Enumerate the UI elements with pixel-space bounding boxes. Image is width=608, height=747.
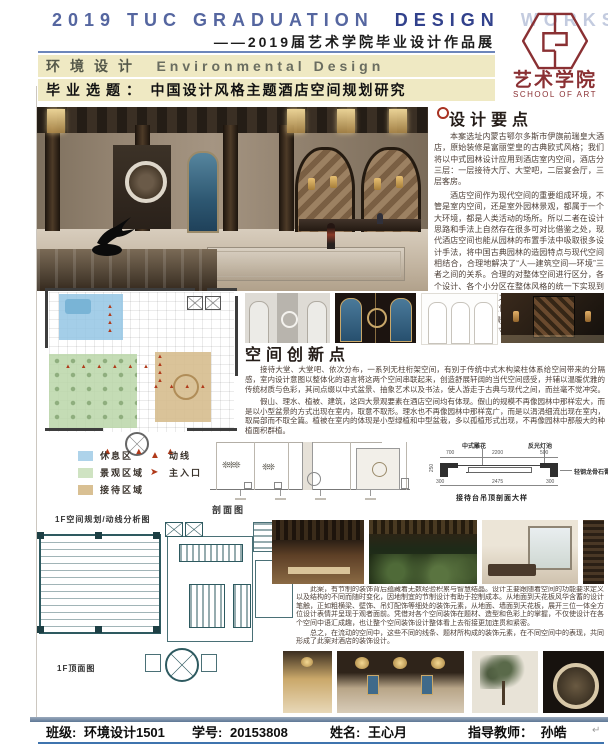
footer-bottom-line [38, 742, 604, 744]
medallion-circle [367, 308, 387, 328]
dimension: 300 [546, 479, 554, 485]
section-top-line [216, 442, 382, 443]
dimension: 2475 [492, 479, 503, 485]
gypsum-end-block [440, 463, 458, 477]
chandelier-icon [355, 657, 369, 669]
sofa [488, 564, 536, 576]
annotation-tick [280, 490, 281, 496]
dimension-height: 250 [429, 464, 435, 472]
chandelier-icon [393, 657, 407, 669]
blue-screen-panel [367, 675, 379, 695]
chandelier-icon [431, 657, 445, 669]
gypsum-end-block [540, 463, 558, 477]
column-marker [37, 532, 44, 539]
class-label: 班级: [46, 725, 76, 740]
section-caption: 剖面图 [212, 503, 245, 516]
annotation-label-mark [275, 498, 286, 500]
column-marker [95, 532, 102, 539]
dimension: 500 [540, 450, 548, 456]
chandelier-icon [337, 109, 355, 133]
name-label: 姓名: [330, 725, 360, 740]
arch-outline [249, 301, 269, 343]
tree-foliage [480, 655, 530, 689]
annotation-tick [240, 490, 241, 496]
advisor-label: 指导教师： [468, 725, 533, 740]
footer-class: 班级: 环境设计1501 [46, 722, 165, 741]
column-marker [37, 626, 44, 633]
door-flank [145, 654, 161, 672]
decor-para2: 总之，在流动的空间中，这些不同的线条、题材所构成的装饰元素，在不同空间中的表现，… [296, 630, 604, 647]
student-id-value: 20153808 [230, 725, 288, 740]
slat-ceiling-area [39, 534, 161, 634]
hexagon-logo-icon [506, 12, 604, 70]
dimension: 300 [436, 479, 444, 485]
detail-caption: 接待台吊顶剖面大样 [456, 493, 528, 503]
ceiling-detail-drawing: 中式雕花 反光灯池 700 2200 500 轻钢龙骨石膏板 300 2475 … [436, 441, 604, 503]
chandelier-icon [287, 109, 305, 133]
arrow-marker-icon: ➤ [150, 467, 163, 478]
class-value: 环境设计1501 [84, 725, 165, 740]
lobby-corner-photo [283, 651, 332, 713]
title-part2: DESIGN [395, 10, 500, 30]
plan-wall [235, 296, 238, 376]
footer-student-id: 学号: 20153808 [192, 722, 288, 741]
dimension: 2200 [492, 450, 503, 456]
logo-name-cn: 艺术学院 [506, 70, 604, 90]
advisor-value: 孙皓 [541, 725, 567, 740]
topic-bar: 毕业选题： 中国设计风格主题酒店空间规划研究 [38, 79, 495, 101]
section-lamp-circle [307, 472, 321, 486]
arch-outline [428, 302, 447, 344]
arch-outline [451, 302, 470, 344]
logo-name-en: SCHOOL OF ART [506, 90, 604, 100]
title-chinese: ——2019届艺术学院毕业设计作品展 [38, 32, 495, 52]
lotus-pond-foliage [369, 554, 477, 584]
floor-reflection [501, 335, 604, 343]
legend-label: 休息区 [100, 449, 133, 462]
hero-reception-desk [299, 219, 421, 231]
wall-lamp-icon [585, 311, 591, 322]
rest-zone-swatch [78, 451, 93, 461]
plant-sketch: ❊❊ [262, 462, 273, 473]
moon-gate-photo [543, 651, 604, 713]
legend-label: 动线 [169, 449, 191, 462]
section-drawing: ❊❊❊ ❊❊ [210, 438, 410, 502]
indoor-garden-photo [369, 520, 477, 584]
annotation-label-mark [365, 498, 376, 500]
elevator-icon [187, 296, 203, 310]
lantern-icon [330, 176, 337, 188]
chandelier-icon [389, 109, 407, 133]
furniture-sketch [274, 482, 282, 489]
column-marker [153, 626, 160, 633]
tree-trunk [502, 681, 505, 705]
restaurant-photo [272, 520, 364, 584]
arch-outline [307, 301, 327, 343]
hero-column [223, 125, 238, 231]
slat-ceiling [369, 520, 477, 534]
section-line [350, 442, 351, 490]
profile-notch [540, 468, 550, 477]
legend-row: 接待区域 [78, 481, 218, 498]
title-english: 2019 TUC GRADUATION DESIGN WORKS [52, 10, 502, 31]
floor-plan-1f: ▲ ▲ ▲ ▲ ▲ ▲ ▲ ▲ ▲ ▲ ▲▲▲▲ ▲▲▲▲ ▲ ▲ ▲ [37, 288, 240, 456]
elevation-circle [281, 311, 298, 328]
annotation-tick [320, 490, 321, 496]
subject-en: Environmental Design [156, 58, 384, 74]
poster-page: 2019 TUC GRADUATION DESIGN WORKS ——2019届… [0, 0, 608, 747]
footer-name: 姓名: 王心月 [330, 722, 407, 741]
hero-column [45, 125, 60, 231]
hero-medallion [125, 161, 167, 203]
furniture-sketch [244, 482, 252, 489]
chandelier-icon [301, 657, 313, 667]
hero-person-silhouette [327, 223, 335, 249]
door-flank [201, 654, 217, 672]
plan-wall [187, 428, 237, 431]
ceiling-section-profile [440, 463, 558, 477]
title-part1: 2019 TUC GRADUATION [52, 10, 374, 30]
legend-label: 主入口 [169, 466, 202, 479]
landscape-zone-swatch [78, 468, 93, 478]
moon-window [553, 663, 599, 709]
ceiling-plan-caption: 1F顶面图 [57, 663, 95, 674]
triangle-marker-icon: ▲ [150, 450, 163, 461]
blue-screen-panel [421, 675, 433, 695]
chandelier-icon [47, 109, 65, 133]
hero-blue-art-panel [187, 151, 219, 233]
annotation-label-mark [315, 498, 326, 500]
design-points-para1: 本案选址内蒙古鄂尔多斯市伊旗前瑞皇大酒店，原始装修是富丽堂皇的古典欧式风格；我们… [434, 131, 604, 188]
header-divider [38, 51, 495, 53]
furniture-sketch [401, 478, 409, 489]
plan-legend-markers: ▲ 动线 ➤ 主入口 [150, 447, 202, 481]
section-line [254, 442, 255, 490]
dimension-line [440, 485, 558, 486]
circulation-markers: ▲ ▲ ▲ ▲ ▲ ▲ [65, 364, 153, 370]
subject-bar: 环境设计 Environmental Design [38, 55, 495, 77]
plan-wall [45, 288, 195, 291]
lantern-icon [308, 178, 315, 190]
plan-pool [65, 299, 91, 314]
arch-elevation-thumb [421, 293, 498, 345]
blue-panel-photo-thumb [335, 293, 416, 343]
blue-ornate-panel [340, 298, 362, 342]
revolving-door-icon [165, 648, 199, 682]
plan-wall [45, 288, 48, 348]
annotation-label-mark [235, 498, 246, 500]
legend-label: 接待区域 [100, 483, 144, 496]
slat-ceiling [272, 520, 364, 540]
decor-design-text: 此案，有节制的装饰背后蕴藏着无数经验积累与智慧结晶。设计主要跟随着空间的功能要求… [296, 586, 604, 652]
hero-column [279, 125, 294, 231]
profile-notch [448, 468, 458, 477]
decor-para1: 此案，有节制的装饰背后蕴藏着无数经验积累与智慧结晶。设计主要跟随着空间的功能要求… [296, 586, 604, 628]
hero-clerk-silhouette [377, 213, 383, 224]
footer-advisor: 指导教师： 孙皓 [468, 722, 567, 741]
hero-lobby-rendering [37, 107, 428, 291]
wood-slat-photo [583, 520, 604, 584]
lantern-icon [374, 178, 381, 190]
plan-wall [45, 428, 103, 431]
name-value: 王心月 [368, 725, 407, 740]
innovation-para2: 假山、理水、植被、建筑，这四大景观要素在酒店空间均有体现。假山的规模不再像园林中… [245, 397, 605, 437]
subject-cn: 环境设计 [46, 58, 142, 74]
elevator-icon [205, 296, 221, 310]
topic-label: 毕业选题： [46, 82, 146, 98]
topic-text: 中国设计风格主题酒店空间规划研究 [150, 82, 406, 98]
light-cove-label: 反光灯池 [528, 441, 552, 450]
design-points-title: 设计要点 [449, 106, 533, 130]
board-label: 轻钢龙骨石膏板 [574, 467, 608, 476]
innovation-title: 空间创新点 [245, 341, 350, 365]
plan-wall [207, 288, 237, 291]
innovation-para1: 接待大堂、大堂吧、依次分布，一系列无柱桁架空间，有别于传统中式木构梁柱体系给空间… [245, 365, 605, 395]
arch-outline [474, 302, 493, 344]
section-arch-circle [372, 462, 387, 477]
carved-ceiling-panel [233, 584, 251, 628]
legend-label: 景观区域 [100, 466, 144, 479]
innovation-text: 接待大堂、大堂吧、依次分布，一系列无柱桁架空间，有别于传统中式木构梁柱体系给空间… [245, 365, 605, 443]
elevator-icon [185, 522, 203, 537]
column-marker [95, 626, 102, 633]
circulation-markers-vertical: ▲▲▲▲ [157, 354, 163, 386]
circulation-markers-vertical: ▲▲▲▲ [107, 304, 113, 336]
dimension-line [440, 457, 558, 458]
lantern-icon [396, 176, 403, 188]
lobby-wide-photo [337, 651, 464, 713]
legend-row: ➤ 主入口 [150, 464, 202, 481]
carved-ceiling-panel [189, 584, 225, 628]
profile-line [458, 465, 540, 466]
dining-table [288, 567, 350, 574]
elevator-icon [165, 522, 183, 537]
seal-icon [437, 107, 449, 119]
blue-ornate-panel [390, 298, 412, 342]
hero-floor-inlay [207, 247, 405, 281]
diamond-wood-panel [533, 296, 575, 338]
reception-zone-swatch [78, 485, 93, 495]
profile-recess [468, 467, 532, 473]
elevation-drawing-thumb [245, 293, 330, 343]
school-logo: 艺术学院 SCHOOL OF ART [506, 12, 604, 104]
student-id-label: 学号: [192, 725, 222, 740]
plant-sketch: ❊❊❊ [222, 460, 239, 471]
dimension: 700 [446, 450, 454, 456]
leader-line [560, 470, 572, 471]
crane-sculpture-icon [87, 213, 149, 262]
legend-row: ▲ 动线 [150, 447, 202, 464]
section-line [216, 442, 217, 490]
ceiling-plan-1f [37, 520, 292, 702]
wall-lamp-icon [513, 311, 519, 322]
carved-ceiling-panel [179, 544, 243, 562]
column-marker [153, 532, 160, 539]
section-line [288, 442, 289, 490]
return-mark-icon: ↵ [592, 725, 600, 736]
courtyard-tree-photo [472, 651, 538, 713]
suite-photo [482, 520, 578, 584]
annotation-tick [370, 490, 371, 496]
wood-panel-photo-thumb [501, 293, 604, 343]
